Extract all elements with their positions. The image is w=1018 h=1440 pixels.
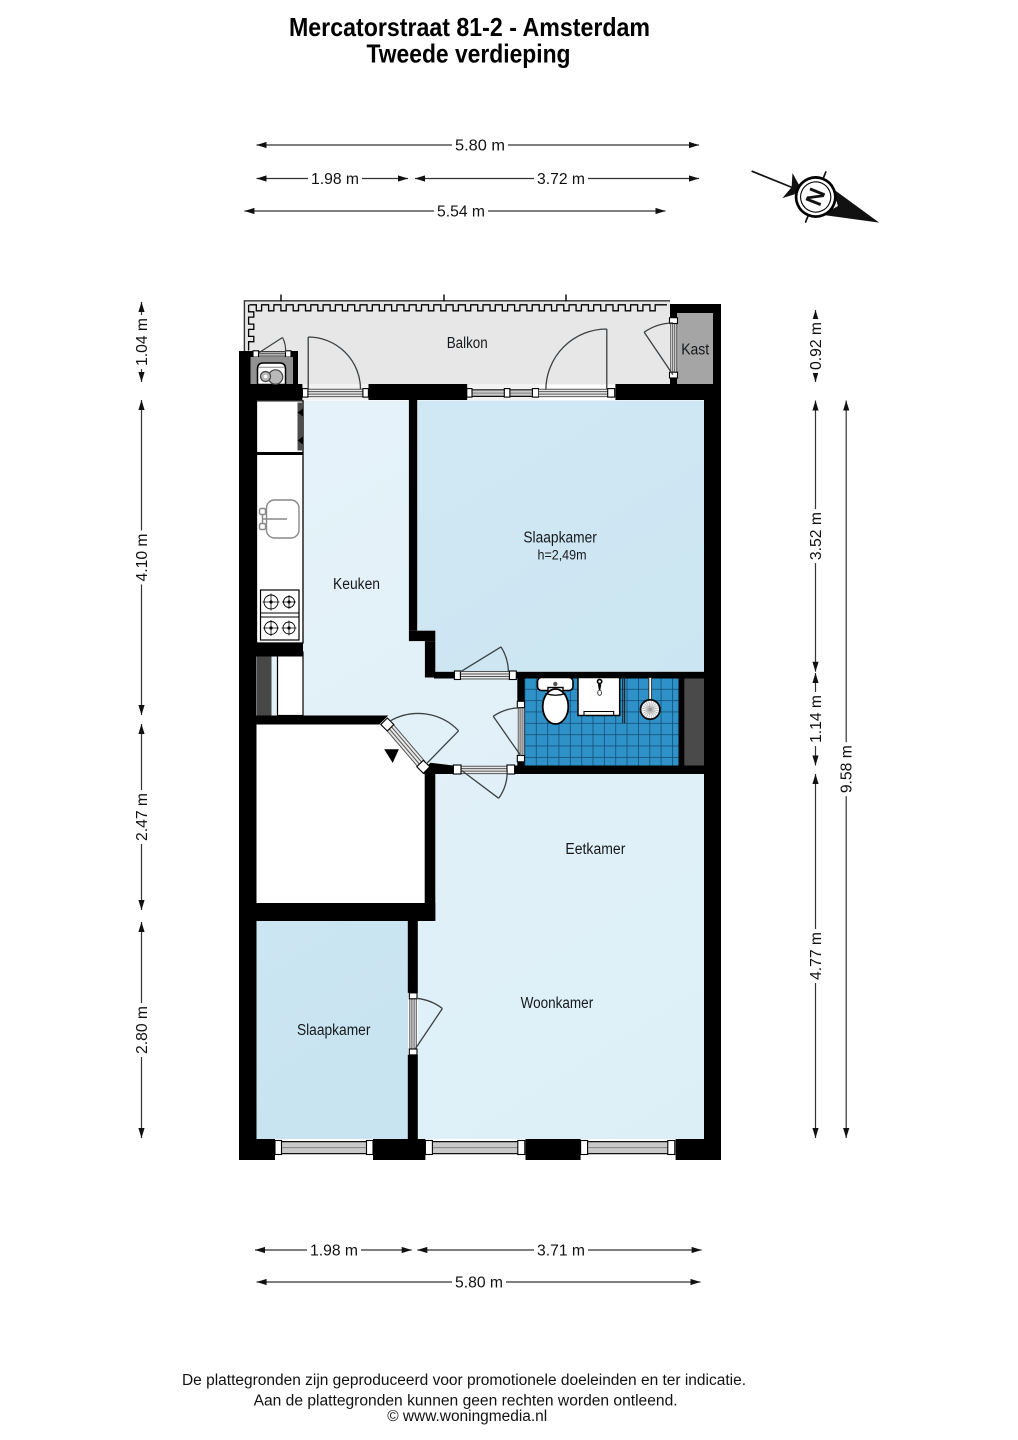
svg-text:1.14 m: 1.14 m <box>808 695 825 743</box>
svg-text:Slaapkamer: Slaapkamer <box>523 529 597 546</box>
svg-text:Slaapkamer: Slaapkamer <box>297 1022 371 1039</box>
svg-text:3.71 m: 3.71 m <box>537 1242 585 1259</box>
svg-text:5.54 m: 5.54 m <box>437 203 485 220</box>
svg-text:5.80 m: 5.80 m <box>455 1274 503 1291</box>
svg-text:2.80 m: 2.80 m <box>134 1006 151 1054</box>
svg-text:3.72 m: 3.72 m <box>537 171 585 188</box>
svg-text:1.04 m: 1.04 m <box>134 318 151 366</box>
svg-text:4.10 m: 4.10 m <box>134 534 151 582</box>
svg-text:5.80 m: 5.80 m <box>455 137 505 154</box>
svg-text:h=2,49m: h=2,49m <box>538 547 587 563</box>
svg-text:Keuken: Keuken <box>333 576 380 593</box>
svg-text:Eetkamer: Eetkamer <box>565 841 625 858</box>
svg-text:Kast: Kast <box>681 341 710 358</box>
svg-text:4.77 m: 4.77 m <box>808 932 825 980</box>
svg-text:Tweede verdieping: Tweede verdieping <box>367 39 571 69</box>
svg-text:Balkon: Balkon <box>447 335 488 352</box>
svg-text:0.92 m: 0.92 m <box>808 322 825 370</box>
svg-text:3.52 m: 3.52 m <box>808 512 825 560</box>
svg-text:Aan de plattegronden kunnen ge: Aan de plattegronden kunnen geen rechten… <box>254 1392 678 1409</box>
svg-text:1.98 m: 1.98 m <box>311 171 359 188</box>
svg-text:Woonkamer: Woonkamer <box>521 995 594 1012</box>
svg-text:De plattegronden zijn geproduc: De plattegronden zijn geproduceerd voor … <box>182 1372 746 1389</box>
svg-text:1.98 m: 1.98 m <box>310 1242 358 1259</box>
svg-text:9.58 m: 9.58 m <box>839 745 856 793</box>
svg-text:© www.woningmedia.nl: © www.woningmedia.nl <box>387 1408 547 1425</box>
svg-text:2.47 m: 2.47 m <box>134 793 151 841</box>
